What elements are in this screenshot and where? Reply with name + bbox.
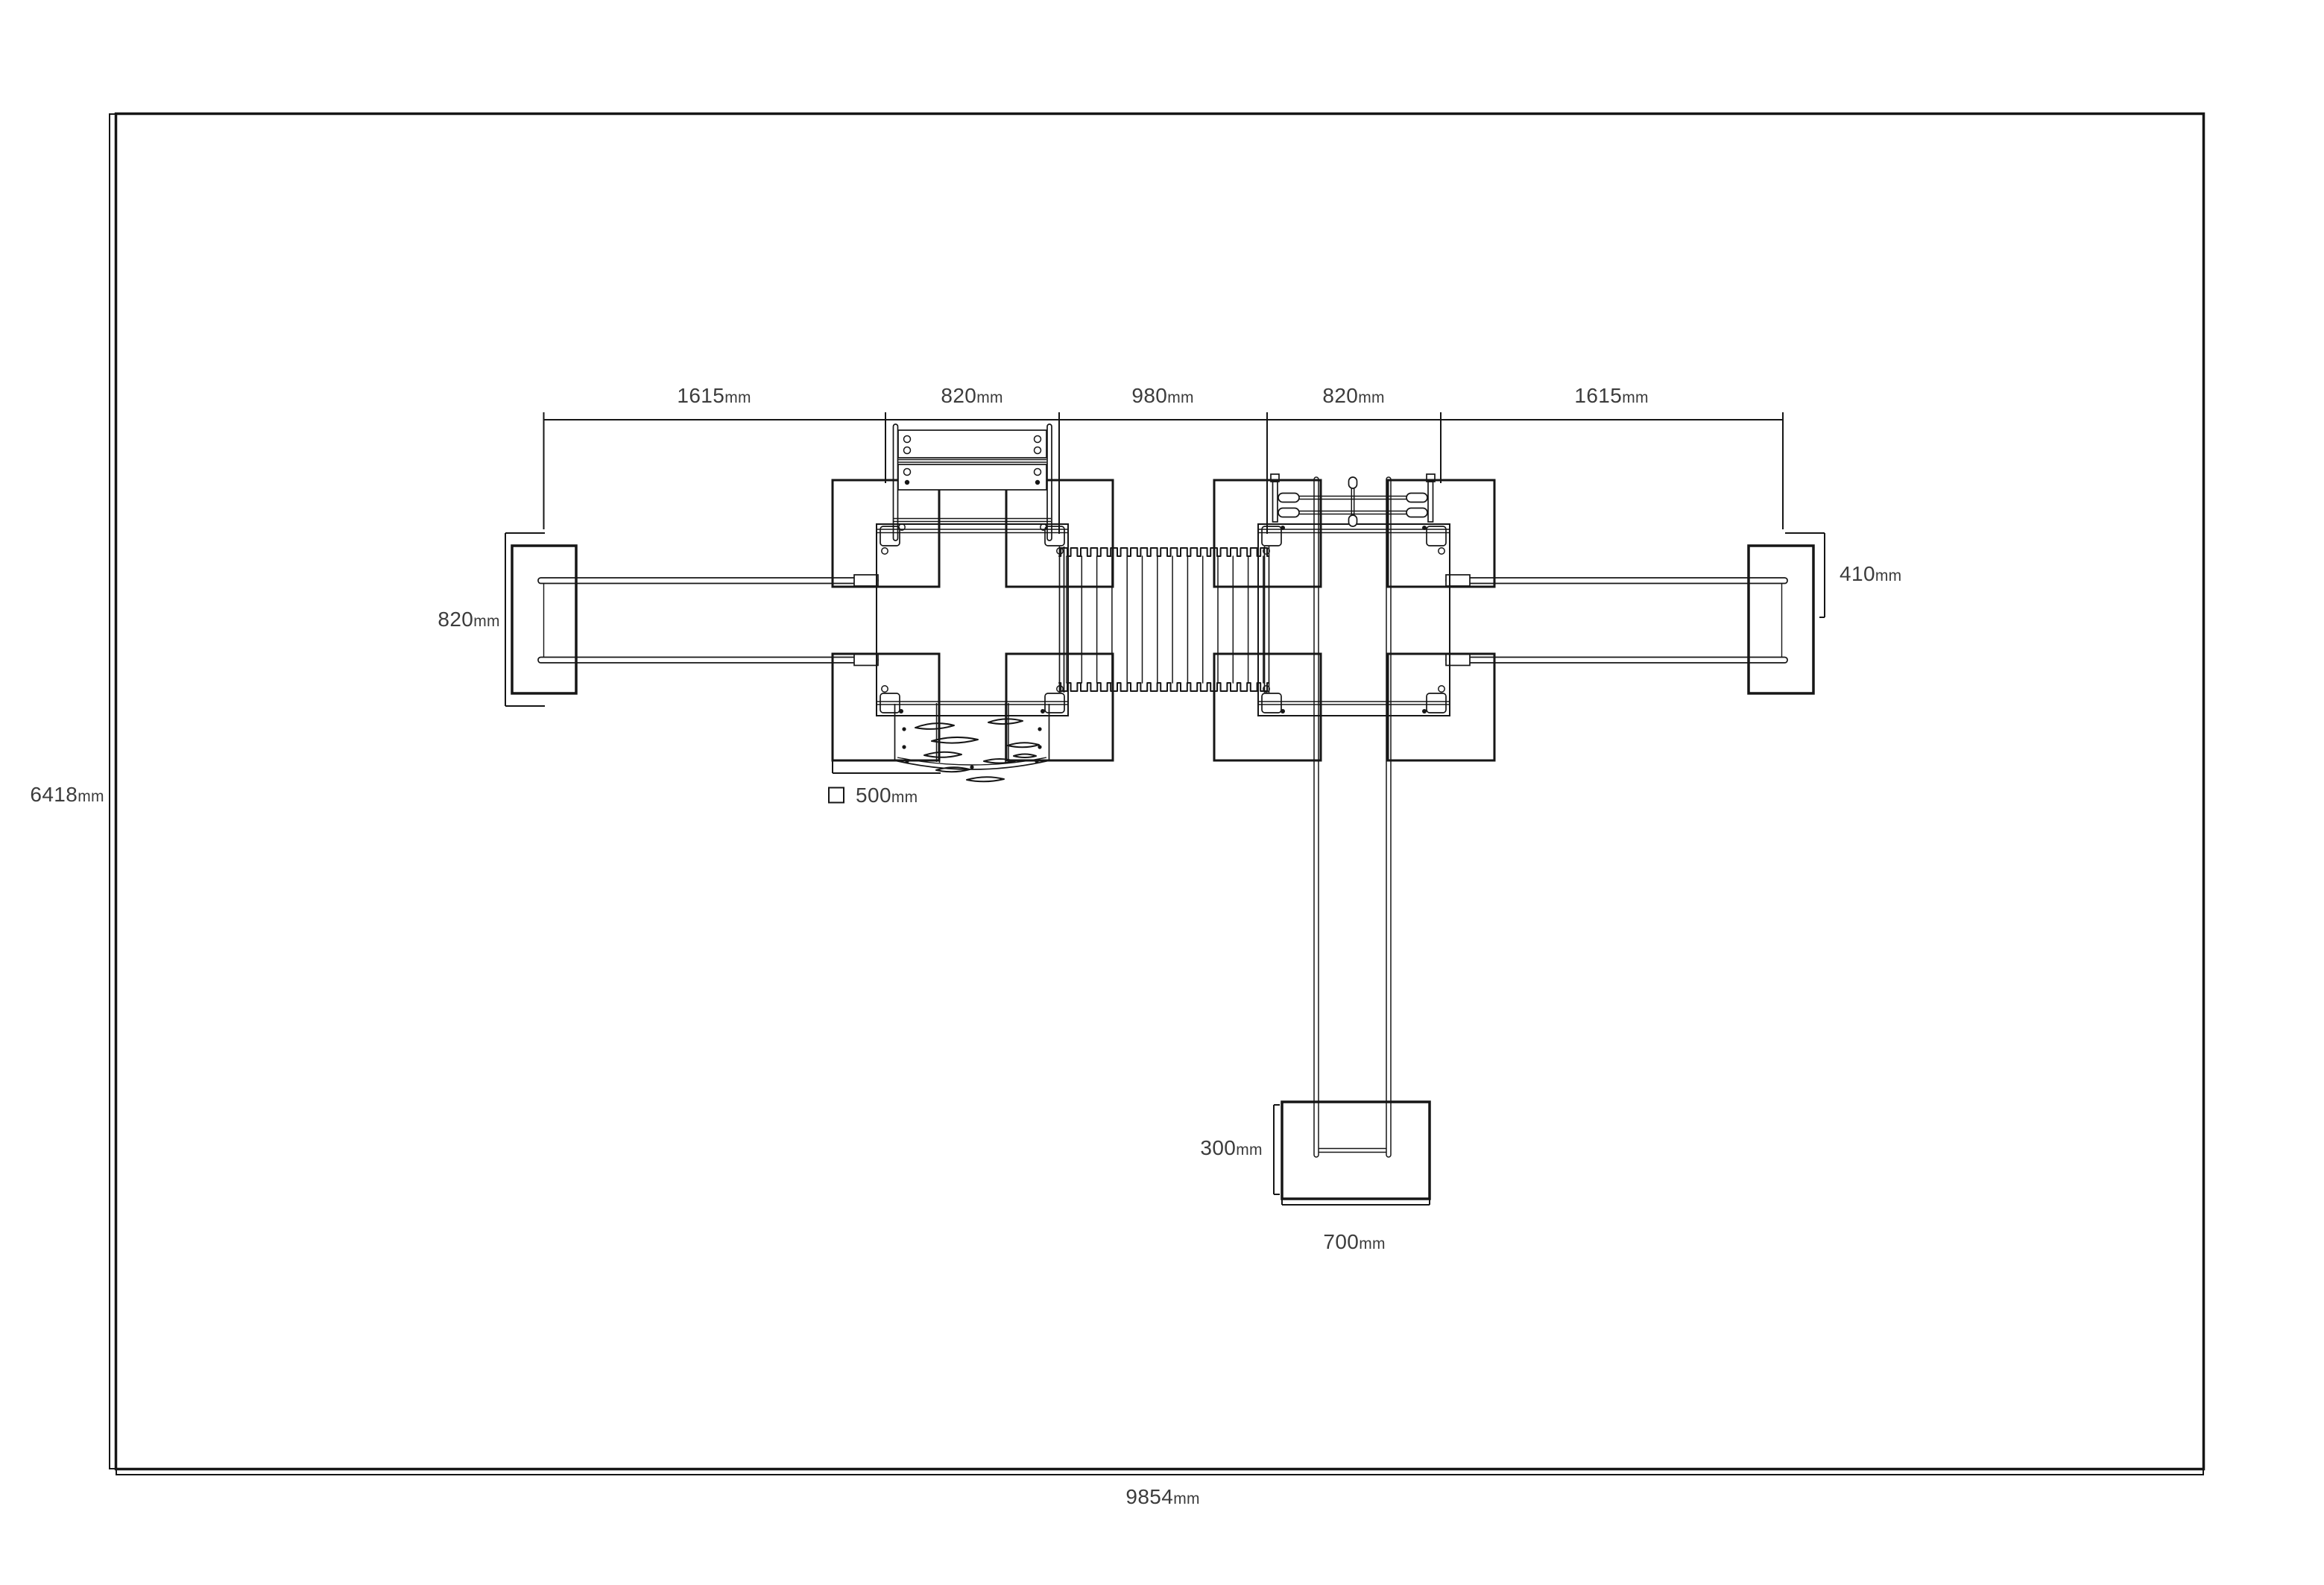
left-deck — [877, 524, 1068, 716]
post-footprint-legend-square — [829, 788, 844, 803]
post-pad — [1214, 654, 1321, 760]
playground-plan-drawing — [0, 0, 2324, 1585]
post-pad — [833, 480, 939, 587]
dim-label-top-2: 820mm — [941, 384, 1002, 408]
dim-label-slide-exit-depth: 300mm — [1200, 1136, 1262, 1160]
slide-exit-box — [1282, 1102, 1430, 1199]
dim-label-slide-exit-width: 700mm — [1323, 1230, 1385, 1254]
dimension-lines — [110, 113, 2204, 1475]
slide-rail — [1314, 477, 1319, 1157]
dim-label-overall-height: 6418mm — [30, 783, 104, 807]
slide-exit-depth-bracket — [1274, 1105, 1280, 1194]
dim-label-top-5: 1615mm — [1574, 384, 1648, 408]
access-ladder — [894, 424, 1052, 541]
right-deck — [1258, 524, 1450, 716]
right-beam-end-block — [1749, 546, 1813, 693]
dim-label-top-3: 980mm — [1131, 384, 1193, 408]
drawing-frame — [116, 114, 2204, 1469]
left-tower — [833, 480, 1113, 760]
post-pad — [1388, 654, 1494, 760]
dim-label-left-beam: 820mm — [438, 608, 499, 631]
wood-grain-marks — [915, 719, 1039, 781]
dim-label-overall-width: 9854mm — [1125, 1485, 1199, 1509]
drawing-canvas: 1615mm 820mm 980mm 820mm 1615mm 820mm 41… — [0, 0, 2324, 1585]
bar-handle — [1406, 494, 1427, 502]
monkey-bars — [1271, 474, 1435, 526]
dim-label-right-beam: 410mm — [1840, 562, 1901, 586]
bar-handle — [1278, 494, 1299, 502]
tunnel-bridge — [1059, 546, 1269, 693]
dim-label-top-4: 820mm — [1322, 384, 1384, 408]
right-balance-beam — [1446, 546, 1813, 693]
bar-handle — [1278, 508, 1299, 517]
dim-label-post-legend: 500mm — [856, 784, 918, 807]
left-balance-beam — [512, 546, 878, 693]
bar-handle — [1406, 508, 1427, 517]
tunnel-corrugation — [1059, 548, 1269, 691]
post-square-dimension-bracket — [833, 742, 941, 773]
straight-slide — [1282, 477, 1430, 1199]
post-pad — [833, 654, 939, 760]
wavy-ramp-slide — [894, 703, 1049, 781]
dim-label-top-1: 1615mm — [677, 384, 751, 408]
